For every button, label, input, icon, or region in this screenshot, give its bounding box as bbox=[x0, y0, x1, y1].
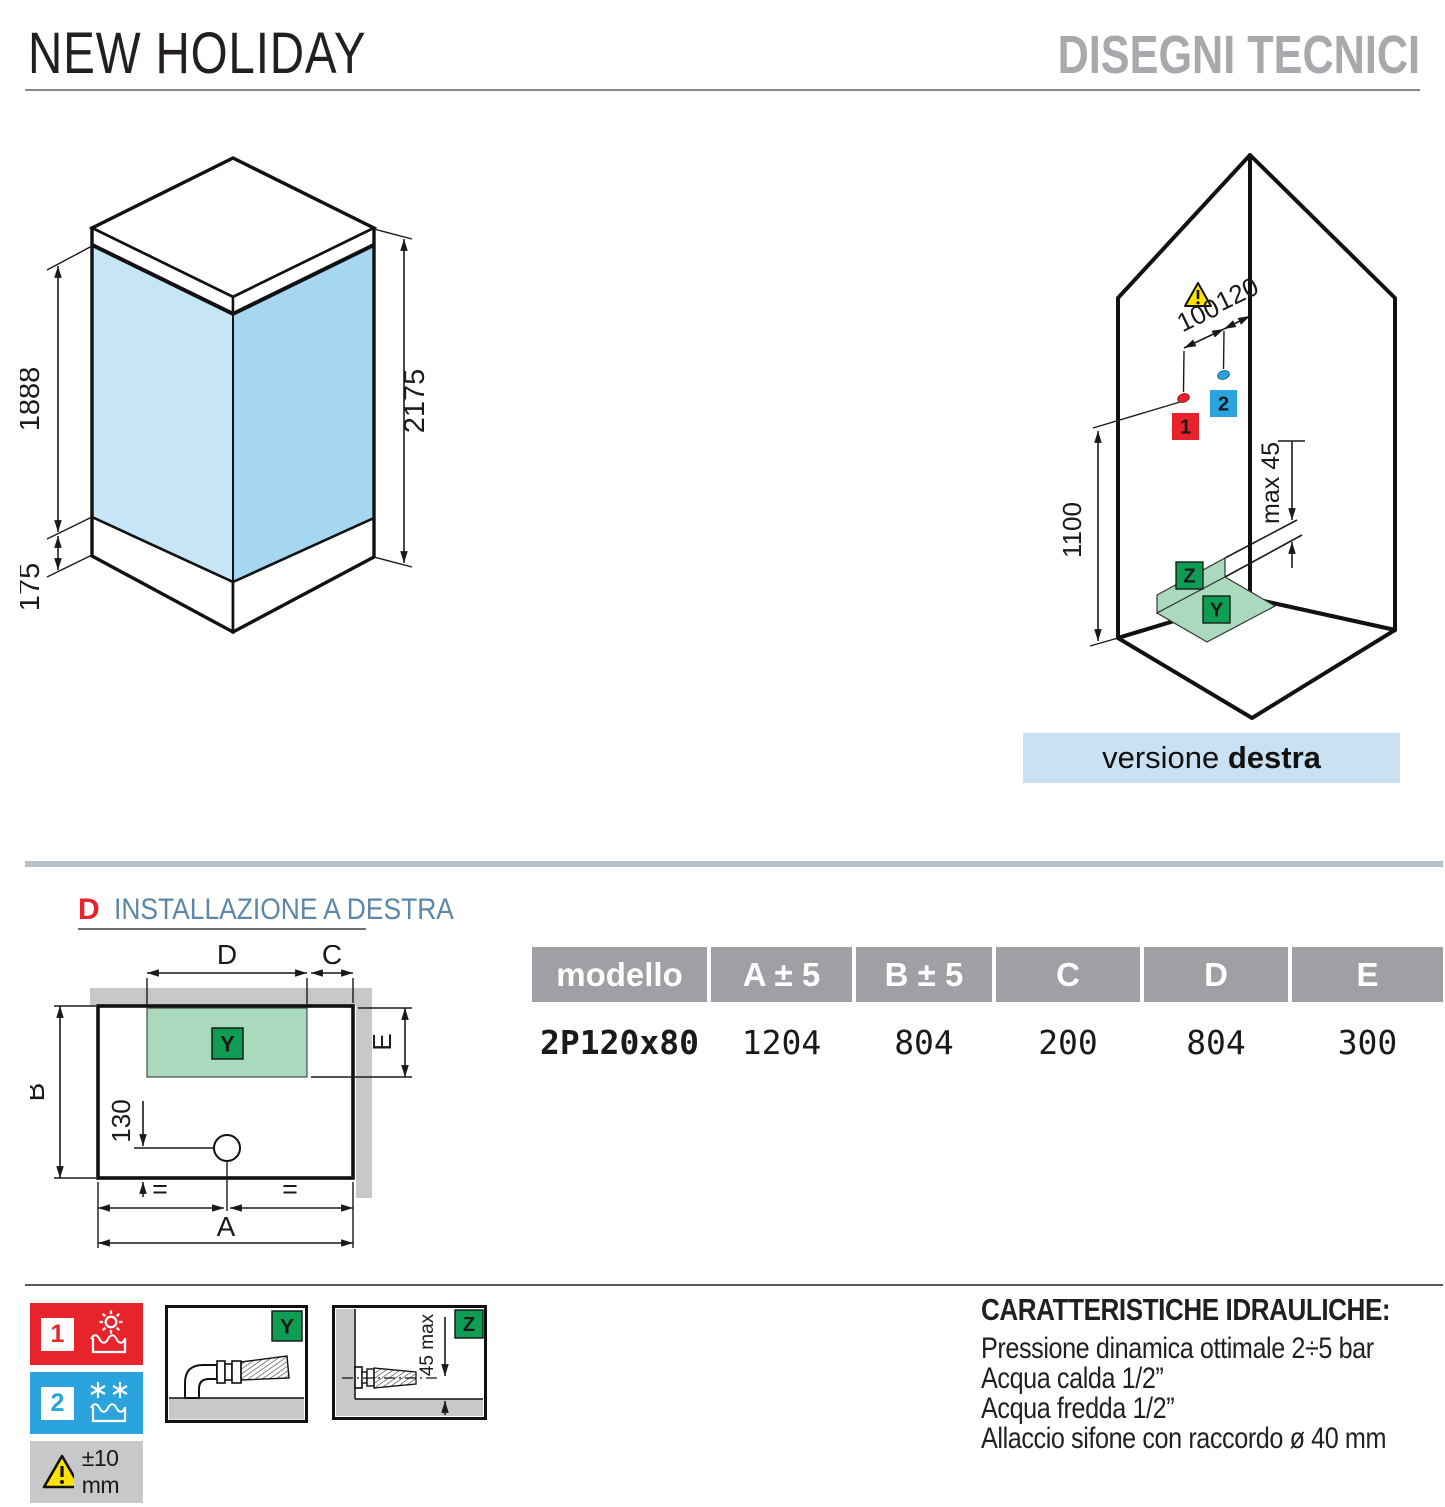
hydraulic-spec-line: Acqua calda 1/2” bbox=[981, 1364, 1445, 1394]
extension-line bbox=[1090, 638, 1118, 646]
plan-wall-top bbox=[90, 988, 370, 1005]
cold-water-legend: 2 bbox=[30, 1372, 143, 1434]
drop-line-hot bbox=[1184, 351, 1185, 392]
table-cell-c: 200 bbox=[996, 1020, 1140, 1064]
plan-heading-underline bbox=[78, 928, 366, 930]
frost-water-icon bbox=[83, 1379, 135, 1427]
detail-y-drawing: Y bbox=[165, 1305, 308, 1423]
extension-line bbox=[47, 246, 92, 270]
installation-isometric-drawing: Z Y 100 120 1 2 1100 bbox=[1000, 130, 1445, 742]
table-cell-e: 300 bbox=[1292, 1020, 1443, 1064]
drop-line-cold bbox=[1224, 331, 1225, 369]
sun-water-icon bbox=[83, 1310, 135, 1358]
table-header-modello: modello bbox=[532, 947, 707, 1002]
table-header-d: D bbox=[1144, 947, 1288, 1002]
table-cell-a: 1204 bbox=[711, 1020, 852, 1064]
extension-line bbox=[374, 229, 412, 239]
plan-zone-y-label: Y bbox=[220, 1032, 235, 1057]
plan-marker: D bbox=[78, 893, 100, 926]
dim-45max-label: 45 max bbox=[417, 1313, 438, 1376]
max45-label: max 45 bbox=[1257, 442, 1285, 524]
plan-wall-right bbox=[356, 988, 372, 1198]
dim-c-label: C bbox=[322, 945, 342, 970]
extension-line bbox=[47, 517, 92, 539]
extension-line bbox=[47, 555, 92, 577]
table-cell-d: 804 bbox=[1144, 1020, 1288, 1064]
detail-z-floor bbox=[336, 1399, 483, 1416]
detail-z-label: Z bbox=[463, 1314, 475, 1336]
footer-divider bbox=[25, 1284, 1443, 1286]
hydraulic-spec-line: Pressione dinamica ottimale 2÷5 bar bbox=[981, 1334, 1445, 1364]
hot-water-legend: 1 bbox=[30, 1303, 143, 1365]
hydraulic-specs: CARATTERISTICHE IDRAULICHE: Pressione di… bbox=[981, 1292, 1445, 1454]
version-side: destra bbox=[1228, 740, 1321, 775]
installation-plan-drawing: Y D C B E 130 = bbox=[30, 945, 450, 1267]
zone-z-label: Z bbox=[1183, 566, 1195, 588]
dimensions-table: modello A ± 5 B ± 5 C D E 2P120x80 1204 … bbox=[532, 947, 1443, 1064]
table-cell-model: 2P120x80 bbox=[532, 1020, 707, 1064]
tolerance-value: ±10 mm bbox=[82, 1445, 143, 1499]
plan-heading: DINSTALLAZIONE A DESTRA bbox=[78, 893, 500, 927]
table-header-b: B ± 5 bbox=[856, 947, 992, 1002]
dim-b-label: B bbox=[30, 1083, 50, 1102]
technical-sheet-page: NEW HOLIDAY DISEGNI TECNICI bbox=[0, 0, 1445, 1507]
dim-drain-label: 130 bbox=[106, 1099, 136, 1142]
hydraulic-specs-title: CARATTERISTICHE IDRAULICHE: bbox=[981, 1292, 1445, 1328]
total-height-label: 2175 bbox=[399, 369, 431, 434]
hot-marker-label: 1 bbox=[1180, 417, 1191, 439]
equal-right-label: = bbox=[282, 1174, 298, 1204]
header-divider bbox=[25, 89, 1420, 91]
plan-title: INSTALLAZIONE A DESTRA bbox=[114, 893, 454, 927]
zone-y-label: Y bbox=[1210, 600, 1224, 622]
version-bar: versione destra bbox=[1023, 733, 1400, 783]
detail-z-drawing: 45 max Z bbox=[332, 1305, 487, 1420]
cabin-isometric-drawing: 1888 175 2175 bbox=[20, 130, 460, 750]
page-title: DISEGNI TECNICI bbox=[1058, 24, 1420, 86]
dim-a-label: A bbox=[217, 1211, 236, 1242]
tolerance-legend: ±10 mm bbox=[30, 1441, 143, 1503]
drain-hole bbox=[214, 1135, 240, 1161]
base-height-label: 175 bbox=[20, 563, 46, 611]
detail-y-floor bbox=[169, 1398, 304, 1420]
warning-triangle-icon bbox=[40, 1452, 74, 1492]
equal-left-label: = bbox=[152, 1174, 168, 1204]
hydraulic-spec-line: Acqua fredda 1/2” bbox=[981, 1394, 1445, 1424]
dim-d-label: D bbox=[217, 945, 237, 970]
version-text: versione bbox=[1102, 740, 1228, 775]
cold-marker-label: 2 bbox=[1218, 394, 1229, 416]
section-divider bbox=[25, 861, 1443, 867]
glass-height-label: 1888 bbox=[20, 367, 46, 432]
detail-y-label: Y bbox=[280, 1316, 294, 1339]
cold-number-badge: 2 bbox=[41, 1387, 74, 1420]
table-header-c: C bbox=[996, 947, 1140, 1002]
hydraulic-spec-line: Allaccio sifone con raccordo ø 40 mm bbox=[981, 1424, 1445, 1454]
dim-e-label: E bbox=[367, 1033, 397, 1050]
mixer-height-label: 1100 bbox=[1057, 502, 1087, 558]
hot-number-badge: 1 bbox=[41, 1318, 74, 1351]
product-title: NEW HOLIDAY bbox=[28, 20, 366, 87]
table-header-a: A ± 5 bbox=[711, 947, 852, 1002]
table-cell-b: 804 bbox=[856, 1020, 992, 1064]
cabin-box bbox=[92, 158, 374, 632]
table-header-e: E bbox=[1292, 947, 1443, 1002]
wall-right bbox=[1250, 155, 1395, 630]
room-corner bbox=[1118, 155, 1395, 718]
extension-line bbox=[374, 557, 412, 567]
